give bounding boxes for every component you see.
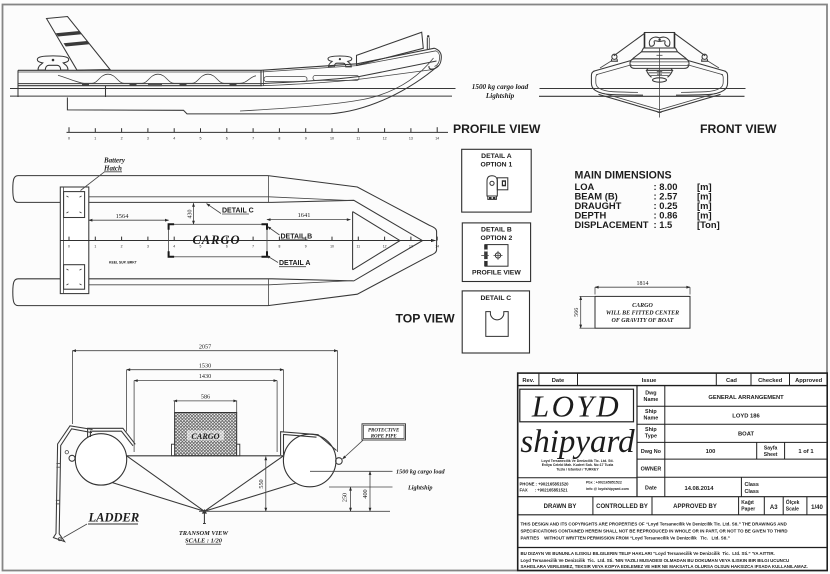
svg-text:1: 1 [94,137,96,141]
svg-text:FRONT VIEW: FRONT VIEW [700,122,777,136]
svg-text:Dwg: Dwg [645,391,656,397]
svg-text:Loyd Tersanecilik Ve Denizcili: Loyd Tersanecilik Ve Denizcilik Tic. Ltd… [521,558,790,563]
svg-text:DISPLACEMENT: DISPLACEMENT [575,219,649,230]
svg-text:CARGO: CARGO [632,303,653,309]
svg-text:1: 1 [94,245,96,249]
svg-text:250: 250 [342,493,349,502]
svg-text:info @ loydshipyard.com: info @ loydshipyard.com [586,487,629,491]
svg-text:Paper: Paper [741,507,755,513]
svg-text:10: 10 [330,137,334,141]
svg-text:DETAIL B: DETAIL B [281,233,313,240]
svg-text:Scale: Scale [786,507,799,513]
svg-text:13: 13 [409,137,413,141]
svg-text:8: 8 [278,245,280,249]
svg-text:PHONE : +902165851520: PHONE : +902165851520 [520,482,570,487]
svg-text:[Ton]: [Ton] [697,219,720,230]
svg-text:1500 kg cargo load: 1500 kg cargo load [472,83,529,91]
svg-text:Issue: Issue [642,378,658,384]
svg-text:APPROVED BY: APPROVED BY [673,504,717,510]
svg-text:Battery: Battery [103,157,126,165]
svg-text:Date: Date [645,486,657,492]
svg-text:Ölçek: Ölçek [786,499,800,506]
svg-text:586: 586 [201,394,210,401]
svg-text:1430: 1430 [199,373,211,380]
svg-text:CARGO: CARGO [192,233,240,247]
svg-text:Evliya Celebi Mah. Kudret Sok.: Evliya Celebi Mah. Kudret Sok. No:17 Tuz… [542,463,614,467]
svg-text:13: 13 [409,245,413,249]
svg-text:A3: A3 [770,505,778,511]
svg-text:THIS DESIGN AND ITS COPYRIGHTS: THIS DESIGN AND ITS COPYRIGHTS ARE PROPE… [521,522,787,527]
svg-text:shipyard: shipyard [520,424,635,460]
svg-text:4: 4 [173,245,175,249]
svg-text:1500 kg cargo load: 1500 kg cargo load [396,469,446,476]
svg-text:OPTION 2: OPTION 2 [481,235,513,242]
svg-text:BOAT: BOAT [738,432,754,438]
svg-text:1530: 1530 [199,362,211,369]
svg-text:Class: Class [745,482,759,488]
svg-text:Checked: Checked [758,378,783,384]
svg-text:1/40: 1/40 [811,505,823,511]
svg-text:SPECIFICATIONS CONTAINED HEREI: SPECIFICATIONS CONTAINED HEREIN SHALL NO… [521,529,788,534]
svg-text:4: 4 [173,137,175,141]
svg-text:Name: Name [644,416,659,422]
svg-text:0: 0 [68,137,70,141]
svg-text:Class: Class [745,489,759,495]
svg-text:7: 7 [252,137,254,141]
svg-text:Ship: Ship [645,427,657,433]
svg-text:7: 7 [252,245,254,249]
svg-text:9: 9 [305,137,307,141]
svg-text:566: 566 [574,308,580,317]
svg-text:GENERAL ARRANGEMENT: GENERAL ARRANGEMENT [708,395,784,401]
svg-text:PROTECTIVE: PROTECTIVE [368,428,400,433]
svg-text:1564: 1564 [116,213,130,220]
svg-text:Hatch: Hatch [103,164,122,172]
svg-text:12: 12 [383,245,387,249]
svg-text:Name: Name [644,397,659,403]
svg-text:430: 430 [188,210,194,219]
svg-text:1 of 1: 1 of 1 [798,449,814,455]
svg-text:DETAIL A: DETAIL A [279,260,310,267]
svg-text:Tuzla / Istanbul / TURKEY: Tuzla / Istanbul / TURKEY [556,468,599,472]
svg-text:OPTION 1: OPTION 1 [481,161,513,168]
svg-text:Lightship: Lightship [485,92,515,100]
svg-text:2057: 2057 [199,343,211,350]
svg-text:LOYD 186: LOYD 186 [732,414,760,420]
svg-text:TRANSOM VIEW: TRANSOM VIEW [179,530,230,537]
svg-text:WILL BE FITTED CENTER: WILL BE FITTED CENTER [606,311,679,317]
svg-text:PROFILE VIEW: PROFILE VIEW [453,122,541,136]
svg-text:ROPE PIPE: ROPE PIPE [371,435,398,440]
svg-text:3: 3 [147,245,149,249]
svg-text:DETAIL C: DETAIL C [480,295,511,302]
svg-text:LOYD: LOYD [531,389,621,424]
svg-text:DRAWN BY: DRAWN BY [544,504,577,510]
svg-text:5: 5 [200,137,202,141]
svg-text:400: 400 [362,489,369,498]
svg-text:11: 11 [357,245,361,249]
svg-text:Sayfa: Sayfa [764,446,778,452]
svg-text:1814: 1814 [637,281,649,287]
svg-text:1641: 1641 [298,212,311,219]
svg-text:MAIN DIMENSIONS: MAIN DIMENSIONS [575,169,672,181]
svg-text:PROFILE VIEW: PROFILE VIEW [472,270,521,277]
svg-text:DETAIL C: DETAIL C [222,208,254,215]
svg-text:8: 8 [278,137,280,141]
svg-text:2: 2 [121,137,123,141]
svg-text:KEEL SUP. BRKT: KEEL SUP. BRKT [109,261,138,265]
svg-text:11: 11 [356,137,360,141]
svg-text:3: 3 [147,137,149,141]
svg-text:2: 2 [121,245,123,249]
svg-text:Pbx : +902165851522: Pbx : +902165851522 [586,481,622,485]
svg-text:12: 12 [383,137,387,141]
svg-text:Kağıt: Kağıt [741,500,754,506]
svg-text:SCALE : 1/20: SCALE : 1/20 [185,538,223,545]
svg-text:14: 14 [435,245,439,249]
svg-text:10: 10 [330,245,334,249]
svg-text:14.08.2014: 14.08.2014 [684,486,714,492]
svg-text:FAX : +902165851521: FAX : +902165851521 [520,488,569,493]
svg-text:Cad: Cad [726,378,737,384]
svg-text:Type: Type [645,434,657,440]
svg-text:Ship: Ship [645,409,657,415]
svg-text:6: 6 [226,137,228,141]
svg-text:Sheet: Sheet [764,452,778,458]
svg-text:CARGO: CARGO [191,432,219,441]
svg-text:: 1.5: : 1.5 [654,219,673,230]
svg-text:Lightship: Lightship [407,485,432,492]
svg-text:14: 14 [435,137,439,141]
svg-text:Dwg No: Dwg No [641,449,662,455]
svg-text:SAHISLARA VERILEMEZ, TEKSIR VE: SAHISLARA VERILEMEZ, TEKSIR VEYA KOPYA E… [521,564,808,569]
svg-text:Rev.: Rev. [522,378,534,384]
svg-text:OF GRAVITY OF BOAT: OF GRAVITY OF BOAT [612,318,674,324]
svg-text:Date: Date [552,378,565,384]
svg-text:Loyd Tersanecilik Ve Denizcili: Loyd Tersanecilik Ve Denizcilik Tic. Ltd… [541,459,613,463]
svg-text:9: 9 [305,245,307,249]
svg-text:TOP VIEW: TOP VIEW [396,312,456,326]
svg-text:CONTROLLED BY: CONTROLLED BY [596,504,648,510]
svg-text:DETAIL B: DETAIL B [481,227,512,234]
svg-text:DETAIL A: DETAIL A [481,153,512,160]
svg-text:0: 0 [68,245,70,249]
svg-text:LADDER: LADDER [88,511,140,525]
svg-text:BU DIZAYN VE BUNUNLA ILISKILI: BU DIZAYN VE BUNUNLA ILISKILI BILGILERIN… [521,551,775,556]
svg-text:100: 100 [706,449,716,455]
svg-text:Approved: Approved [795,378,823,384]
svg-text:PARTIES WITHOUT WRITTEN PER: PARTIES WITHOUT WRITTEN PERMISSION FROM … [521,536,730,541]
svg-text:550: 550 [258,479,265,488]
svg-text:OWNER: OWNER [641,467,662,473]
